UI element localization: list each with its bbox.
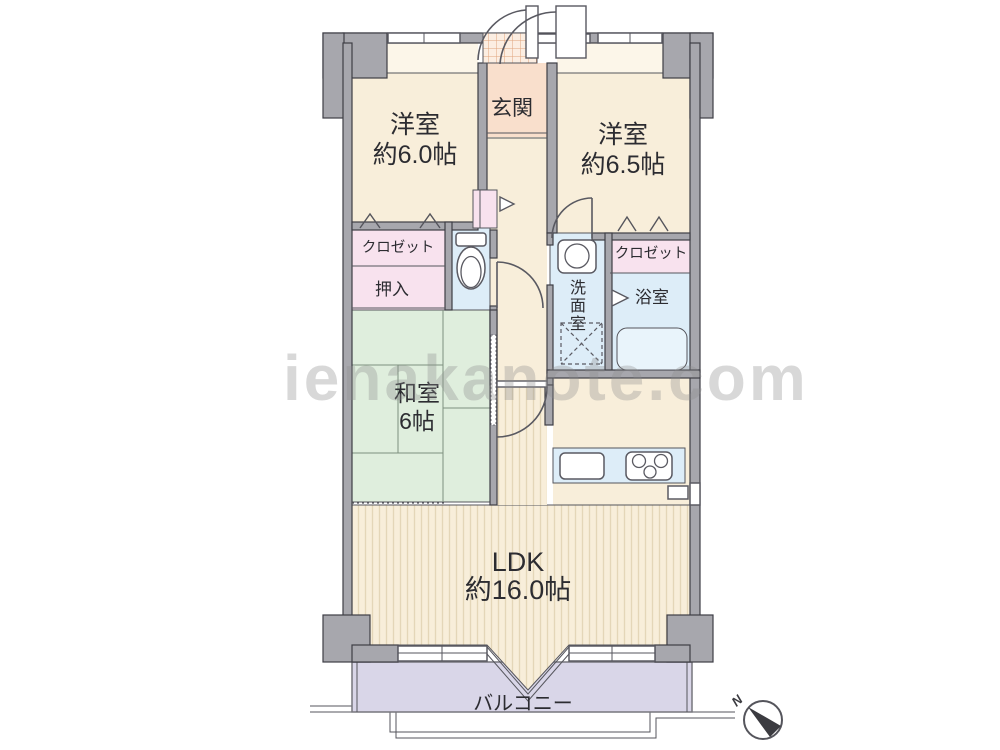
compass: N <box>728 692 782 739</box>
floorplan-drawing: N 洋室 約6.0帖 玄関 洋室 約6.5帖 クロゼット 押入 洗 面 室 クロ… <box>0 0 1000 750</box>
kitchen-step <box>668 486 688 499</box>
bathroom-label: 浴室 <box>635 288 669 307</box>
entrance-porch <box>478 6 590 64</box>
compass-north-label: N <box>728 692 745 710</box>
hall-storage <box>473 190 497 228</box>
ldk-size: 約16.0帖 <box>465 575 572 605</box>
balcony-label: バルコニー <box>473 693 573 715</box>
bedroom2-size: 約6.5帖 <box>581 151 666 179</box>
kitchen-sink-icon <box>560 453 604 479</box>
bedroom1-name: 洋室 <box>390 111 440 139</box>
closet-left-label: クロゼット <box>362 239 435 256</box>
washroom-label-1: 洗 <box>570 279 586 297</box>
closet-right-label: クロゼット <box>615 245 688 262</box>
entrance-label: 玄関 <box>491 97 533 120</box>
bedroom2-name: 洋室 <box>598 121 648 149</box>
washroom-label-3: 室 <box>570 315 586 333</box>
watermark-text: ienakanote.com <box>283 342 809 414</box>
entrance-door-leaf-main <box>556 6 586 58</box>
floorplan-page: N 洋室 約6.0帖 玄関 洋室 約6.5帖 クロゼット 押入 洗 面 室 クロ… <box>0 0 1000 750</box>
bedroom1-size: 約6.0帖 <box>373 141 458 169</box>
toilet-tank-icon <box>456 233 486 246</box>
entrance-door-leaf-small <box>526 6 538 58</box>
window-kitchen <box>690 483 700 505</box>
washroom-label-2: 面 <box>570 298 586 315</box>
oshiire-label: 押入 <box>375 280 409 299</box>
ldk-name: LDK <box>492 547 545 577</box>
